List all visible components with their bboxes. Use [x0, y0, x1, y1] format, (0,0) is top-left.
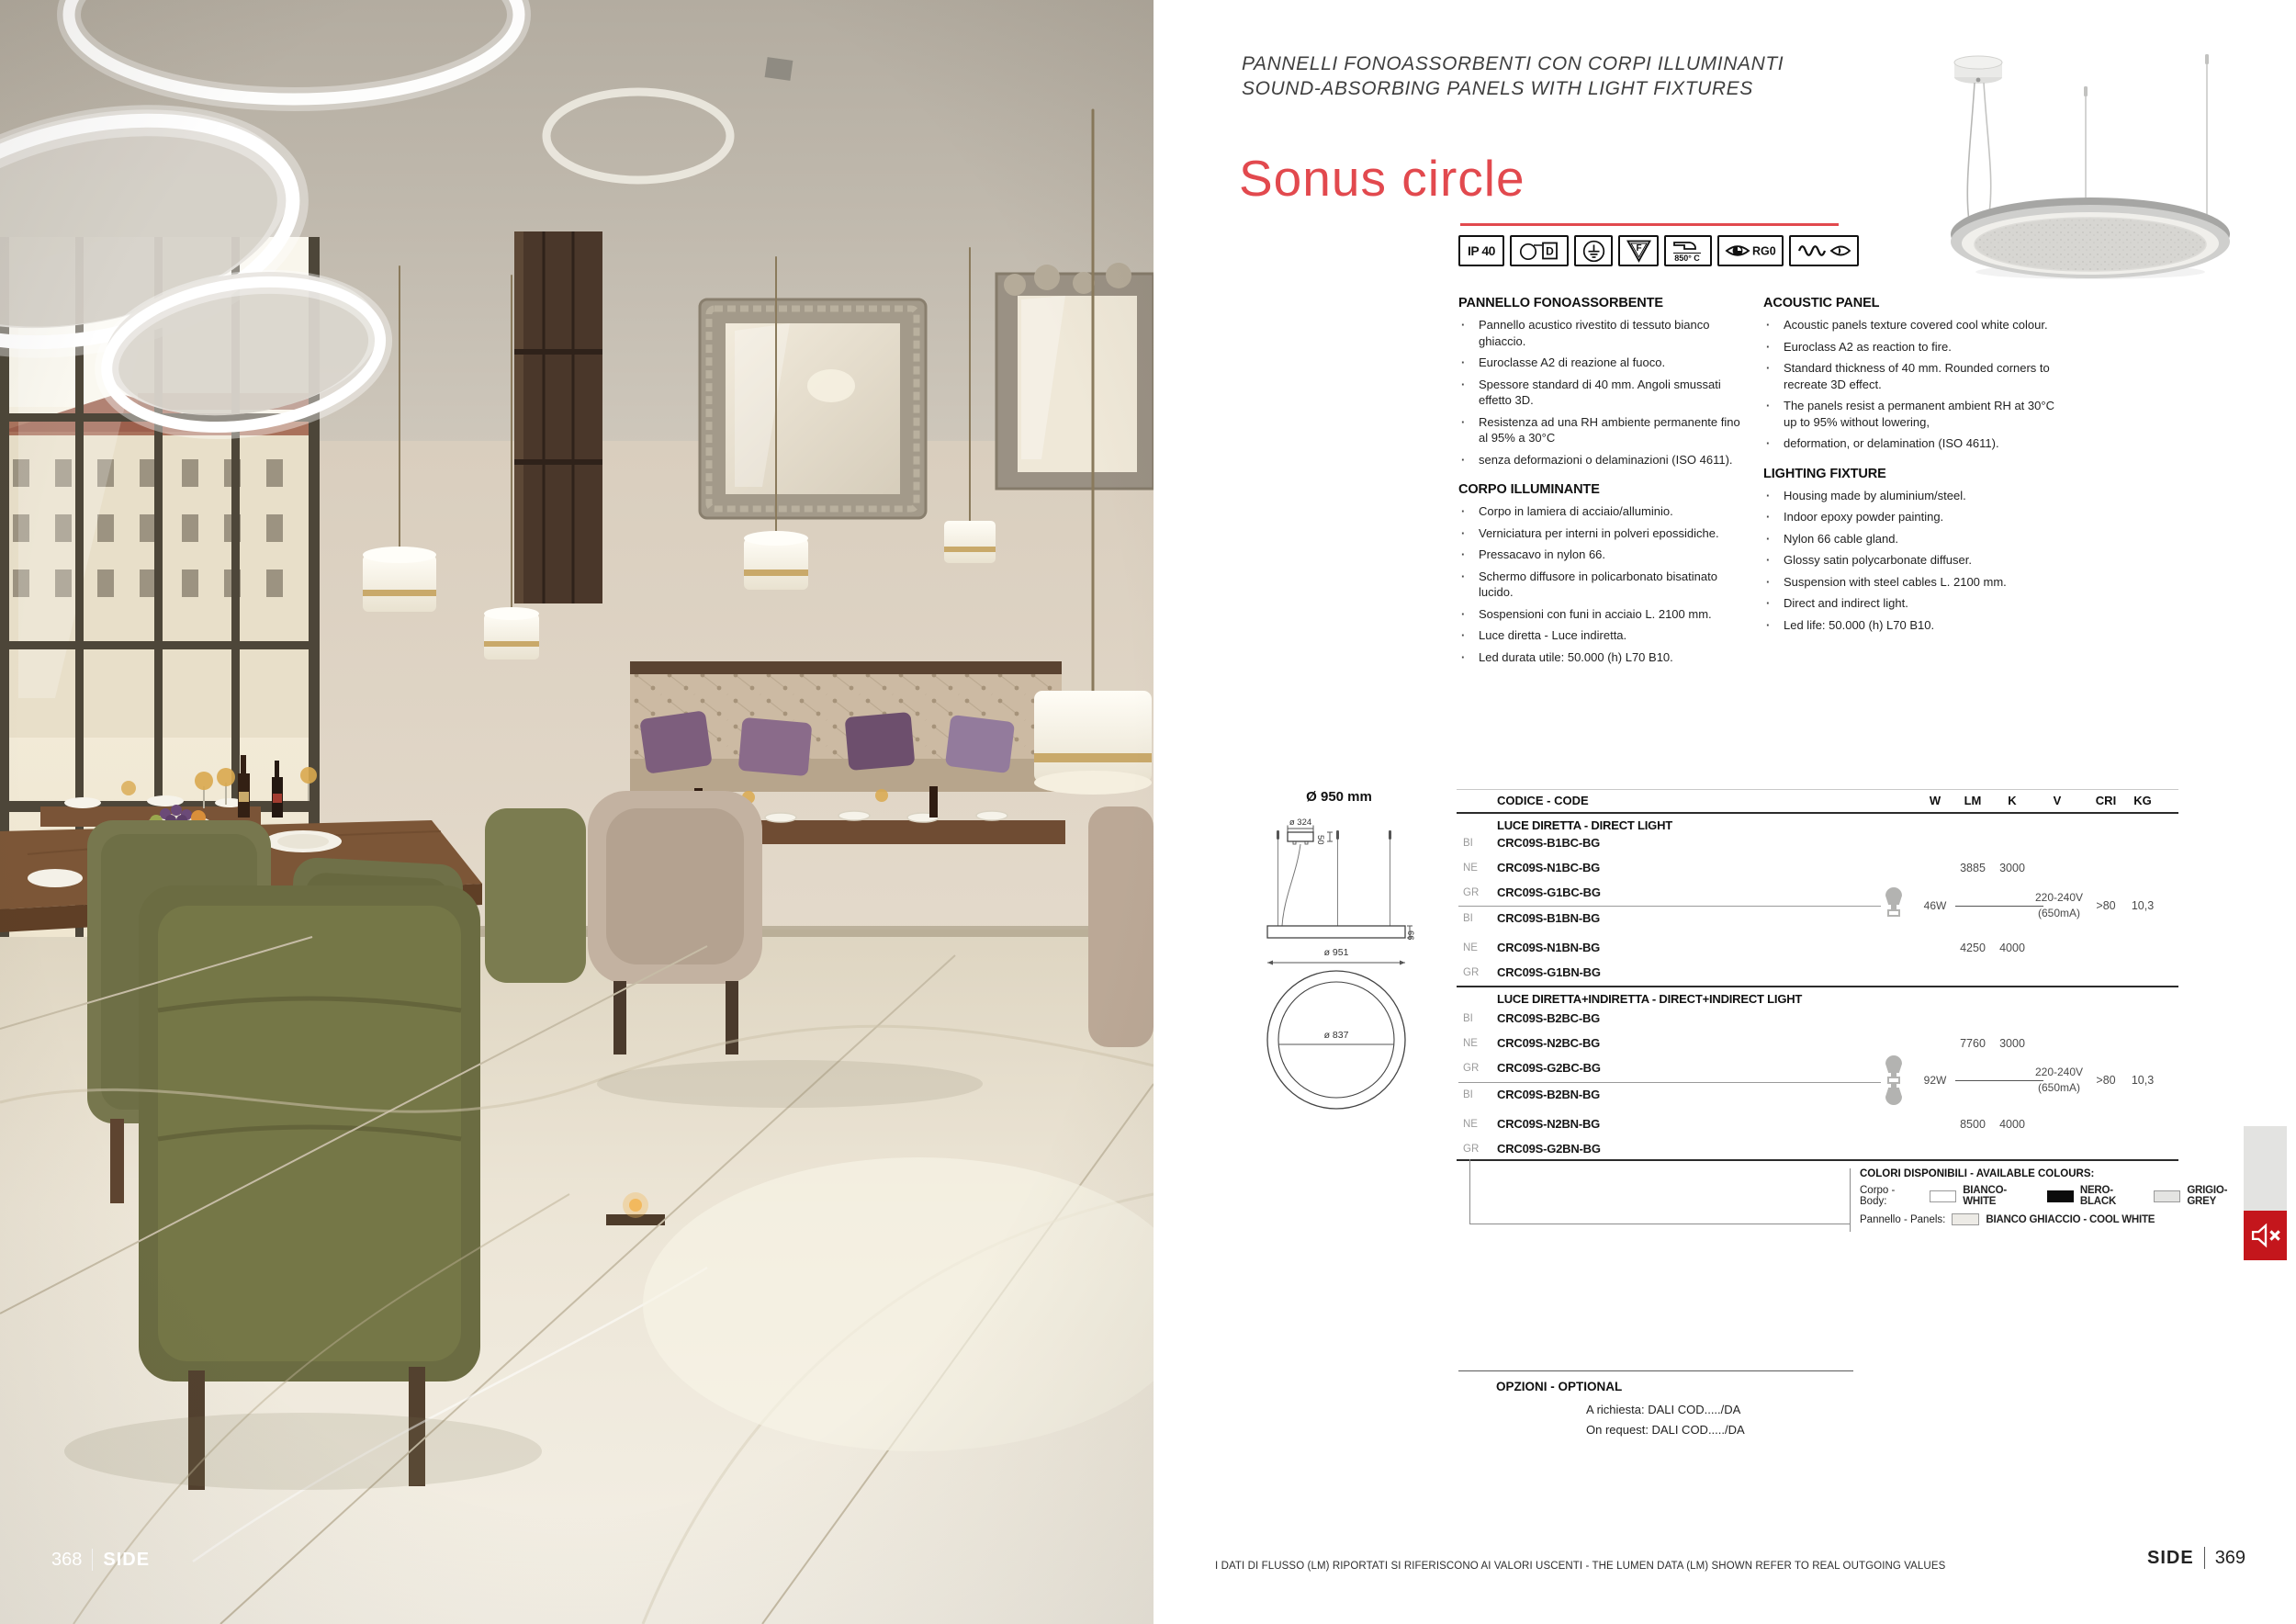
options-title: OPZIONI - OPTIONAL — [1496, 1380, 1622, 1393]
spec-item: Housing made by aluminium/steel. — [1763, 488, 2066, 504]
finish-label: GR — [1463, 1063, 1479, 1074]
spec-item: Euroclasse A2 di reazione al fuoco. — [1458, 355, 1750, 371]
ip40-icon: IP 40 — [1458, 235, 1504, 266]
panel-spec-list-en: Acoustic panels texture covered cool whi… — [1763, 317, 2066, 452]
sub-rule — [1458, 906, 1881, 907]
mute-speaker-button[interactable] — [2244, 1211, 2287, 1260]
finish-label: GR — [1463, 887, 1479, 898]
cri-value: >80 — [2086, 1074, 2126, 1087]
product-code: CRC09S-B1BC-BG — [1497, 836, 1600, 850]
spec-item: Acoustic panels texture covered cool whi… — [1763, 317, 2066, 333]
spec-item: Spessore standard di 40 mm. Angoli smuss… — [1458, 377, 1750, 409]
left-page-number: 368 — [51, 1550, 82, 1571]
specs-italian: PANNELLO FONOASSORBENTE Pannello acustic… — [1458, 296, 1750, 680]
svg-text:850° C: 850° C — [1674, 254, 1700, 263]
dimensions-diagram: Ø 950 mm ø 324 50 66 ø 951 ø 837 — [1260, 786, 1421, 1117]
lumen-value: 8500 — [1953, 1118, 1993, 1131]
swatch-cool-white — [1952, 1213, 1979, 1225]
kelvin-value: 4000 — [1992, 1118, 2032, 1131]
svg-text:F: F — [1636, 243, 1641, 254]
spec-item: deformation, or delamination (ISO 4611). — [1763, 435, 2066, 452]
canopy-height-label: 50 — [1315, 835, 1325, 845]
kelvin-value: 4000 — [1992, 942, 2032, 954]
speaker-muted-icon — [2250, 1222, 2281, 1249]
spec-item: Led life: 50.000 (h) L70 B10. — [1763, 617, 2066, 634]
photobiological-rg0-icon: RG0 — [1717, 235, 1784, 266]
kelvin-value: 3000 — [1992, 862, 2032, 874]
edge-tab — [2244, 1126, 2287, 1211]
kelvin-value: 3000 — [1992, 1037, 2032, 1050]
body-spec-list-it: Corpo in lamiera di acciaio/alluminio. V… — [1458, 503, 1750, 665]
specs-english: ACOUSTIC PANEL Acoustic panels texture c… — [1763, 296, 2066, 648]
spec-item: Luce diretta - Luce indiretta. — [1458, 627, 1750, 644]
table-bottom-rule — [1457, 1159, 2178, 1161]
lumen-value: 4250 — [1953, 942, 1993, 954]
product-code: CRC09S-N2BC-BG — [1497, 1036, 1600, 1050]
restaurant-interior-photo: 368 SIDE — [0, 0, 1154, 1624]
product-code: CRC09S-B2BC-BG — [1497, 1011, 1600, 1025]
finish-label: GR — [1463, 967, 1479, 978]
finish-label: BI — [1463, 913, 1473, 924]
svg-text:D: D — [1546, 245, 1554, 258]
lumen-value: 3885 — [1953, 862, 1993, 874]
white-label: BIANCO- WHITE — [1963, 1185, 2040, 1207]
lumen-footnote: I DATI DI FLUSSO (LM) RIPORTATI SI RIFER… — [1215, 1561, 1945, 1572]
finish-label: NE — [1463, 942, 1478, 953]
spec-item: Pannello acustico rivestito di tessuto b… — [1458, 317, 1750, 349]
wattage-value: 92W — [1915, 1074, 1955, 1087]
black-label: NERO-BLACK — [2080, 1185, 2147, 1207]
panel-spec-list-it: Pannello acustico rivestito di tessuto b… — [1458, 317, 1750, 468]
panel-diameter-label: ø 951 — [1324, 947, 1349, 958]
finish-label: NE — [1463, 1038, 1478, 1049]
swatch-white — [1930, 1190, 1956, 1202]
spec-item: Euroclass A2 as reaction to fire. — [1763, 339, 2066, 355]
spec-item: The panels resist a permanent ambient RH… — [1763, 398, 2066, 430]
wattage-value: 46W — [1915, 899, 1955, 912]
product-code: CRC09S-G2BC-BG — [1497, 1061, 1601, 1075]
current-value: (650mA) — [2030, 1081, 2088, 1094]
spec-item: senza deformazioni o delaminazioni (ISO … — [1458, 452, 1750, 468]
finish-label: GR — [1463, 1144, 1479, 1155]
code-column-header: CODICE - CODE — [1497, 794, 1589, 807]
flicker-free-icon — [1789, 235, 1859, 266]
voltage-value: 220-240V — [2030, 1066, 2088, 1078]
spec-item: Suspension with steel cables L. 2100 mm. — [1763, 574, 2066, 591]
spec-item: Led durata utile: 50.000 (h) L70 B10. — [1458, 649, 1750, 666]
body-section-title-it: CORPO ILLUMINANTE — [1458, 482, 1750, 497]
col-header-kg: KG — [2122, 794, 2163, 807]
spec-item: Pressacavo in nylon 66. — [1458, 547, 1750, 563]
options-line-it: A richiesta: DALI COD...../DA — [1586, 1403, 1740, 1416]
right-page-footer: SIDE 369 — [2147, 1547, 2245, 1569]
product-code-table: CODICE - CODE W LM K V CRI KG LUCE DIRET… — [1457, 788, 2178, 1167]
category-subtitle-en: SOUND-ABSORBING PANELS WITH LIGHT FIXTUR… — [1242, 76, 1784, 101]
earth-ground-icon — [1574, 235, 1613, 266]
overall-diameter-label: Ø 950 mm — [1306, 789, 1372, 805]
product-code: CRC09S-G1BN-BG — [1497, 965, 1601, 979]
col-header-v: V — [2037, 794, 2077, 807]
product-code: CRC09S-N1BC-BG — [1497, 861, 1600, 874]
panel-colours-row: Pannello - Panels: BIANCO GHIACCIO - COO… — [1860, 1213, 2255, 1225]
fixture-spec-list-en: Housing made by aluminium/steel. Indoor … — [1763, 488, 2066, 634]
product-code: CRC09S-N1BN-BG — [1497, 941, 1600, 954]
spec-item: Nylon 66 cable gland. — [1763, 531, 2066, 547]
direct-light-icon — [1881, 886, 1907, 924]
spec-item: Glossy satin polycarbonate diffuser. — [1763, 552, 2066, 569]
product-code: CRC09S-B1BN-BG — [1497, 911, 1600, 925]
series-name: SIDE — [103, 1550, 150, 1571]
colours-legend: COLORI DISPONIBILI - AVAILABLE COLOURS: … — [1850, 1168, 2255, 1232]
panel-section-title-en: ACOUSTIC PANEL — [1763, 296, 2066, 310]
lamp-class-d-icon: D — [1510, 235, 1569, 266]
finish-label: NE — [1463, 1119, 1478, 1130]
left-page-footer: 368 SIDE — [51, 1549, 150, 1571]
right-page-number: 369 — [2215, 1548, 2245, 1569]
series-name: SIDE — [2147, 1548, 2194, 1569]
svg-text:RG0: RG0 — [1752, 245, 1776, 258]
options-rule — [1458, 1370, 1853, 1371]
finish-label: BI — [1463, 838, 1473, 849]
group-title: LUCE DIRETTA - DIRECT LIGHT — [1497, 818, 1672, 832]
voltage-value: 220-240V — [2030, 891, 2088, 904]
colours-title: COLORI DISPONIBILI - AVAILABLE COLOURS: — [1860, 1168, 2255, 1179]
footer-divider — [2204, 1547, 2205, 1569]
inner-diameter-label: ø 837 — [1324, 1030, 1349, 1041]
options-line-en: On request: DALI COD...../DA — [1586, 1423, 1745, 1437]
product-code: CRC09S-N2BN-BG — [1497, 1117, 1600, 1131]
header-rule — [1457, 812, 2178, 814]
direct-indirect-light-icon — [1881, 1054, 1907, 1111]
product-render — [1934, 31, 2252, 281]
title-rule — [1460, 223, 1839, 226]
weight-value: 10,3 — [2122, 899, 2163, 912]
finish-label: BI — [1463, 1089, 1473, 1100]
category-subtitle: PANNELLI FONOASSORBENTI CON CORPI ILLUMI… — [1242, 51, 1784, 101]
sub-rule — [1458, 1082, 1881, 1083]
group-title: LUCE DIRETTA+INDIRETTA - DIRECT+INDIRECT… — [1497, 992, 1802, 1006]
spec-item: Direct and indirect light. — [1763, 595, 2066, 612]
class-f-triangle-icon: F — [1618, 235, 1659, 266]
col-header-k: K — [1992, 794, 2032, 807]
cri-value: >80 — [2086, 899, 2126, 912]
table-top-rule — [1457, 789, 2178, 790]
certification-icons: IP 40 D F 850° C RG0 — [1458, 235, 1859, 266]
weight-value: 10,3 — [2122, 1074, 2163, 1087]
spec-item: Corpo in lamiera di acciaio/alluminio. — [1458, 503, 1750, 520]
cool-white-label: BIANCO GHIACCIO - COOL WHITE — [1986, 1214, 2155, 1225]
footer-divider — [92, 1549, 93, 1571]
swatch-grey — [2154, 1190, 2180, 1202]
finish-label: BI — [1463, 1013, 1473, 1024]
spec-item: Sospensioni con funi in acciaio L. 2100 … — [1458, 606, 1750, 623]
lumen-value: 7760 — [1953, 1037, 1993, 1050]
product-code: CRC09S-G2BN-BG — [1497, 1142, 1601, 1156]
product-code: CRC09S-G1BC-BG — [1497, 885, 1601, 899]
body-colours-row: Corpo - Body: BIANCO- WHITE NERO-BLACK G… — [1860, 1185, 2255, 1207]
spec-item: Verniciatura per interni in polveri epos… — [1458, 525, 1750, 542]
group-rule — [1457, 986, 2178, 987]
swatch-black — [2047, 1190, 2074, 1202]
fixture-section-title-en: LIGHTING FIXTURE — [1763, 467, 2066, 481]
panel-section-title-it: PANNELLO FONOASSORBENTE — [1458, 296, 1750, 310]
interior-scene — [0, 0, 1154, 1624]
body-label: Corpo - Body: — [1860, 1185, 1923, 1207]
current-value: (650mA) — [2030, 907, 2088, 919]
page-title: Sonus circle — [1239, 149, 1525, 208]
category-subtitle-it: PANNELLI FONOASSORBENTI CON CORPI ILLUMI… — [1242, 51, 1784, 76]
finish-label: NE — [1463, 863, 1478, 874]
col-header-lm: LM — [1953, 794, 1993, 807]
product-code: CRC09S-B2BN-BG — [1497, 1088, 1600, 1101]
glow-wire-850-icon: 850° C — [1664, 235, 1712, 266]
canopy-diameter-label: ø 324 — [1289, 818, 1311, 828]
spec-item: Schermo diffusore in policarbonato bisat… — [1458, 569, 1750, 601]
catalog-spread: 368 SIDE PANNELLI FONOASSORBENTI CON COR… — [0, 0, 2296, 1624]
legend-connector-vertical — [1469, 1159, 1470, 1224]
spec-item: Indoor epoxy powder painting. — [1763, 509, 2066, 525]
spec-item: Standard thickness of 40 mm. Rounded cor… — [1763, 360, 2066, 392]
panel-label: Pannello - Panels: — [1860, 1214, 1945, 1225]
col-header-cri: CRI — [2086, 794, 2126, 807]
col-header-w: W — [1915, 794, 1955, 807]
legend-connector-horizontal — [1469, 1224, 1850, 1224]
spec-item: Resistenza ad una RH ambiente permanente… — [1458, 414, 1750, 446]
